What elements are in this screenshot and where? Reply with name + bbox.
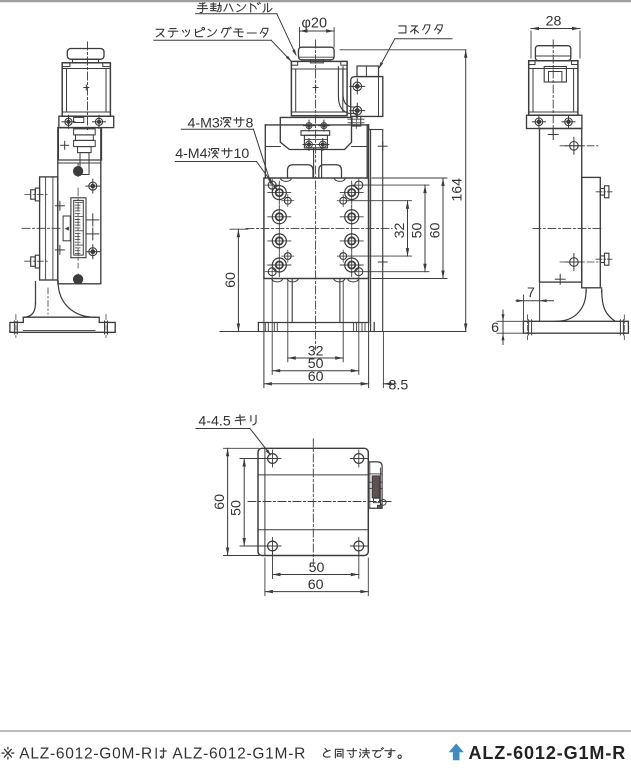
svg-text:ALZ-6012-G1M-R: ALZ-6012-G1M-R (172, 746, 306, 763)
svg-text:60: 60 (223, 272, 239, 288)
svg-text:6: 6 (491, 320, 499, 336)
svg-text:50: 50 (229, 500, 245, 516)
svg-text:10: 10 (234, 146, 250, 162)
svg-text:4-4.5: 4-4.5 (198, 413, 230, 429)
svg-text:32: 32 (392, 223, 408, 239)
svg-text:164: 164 (450, 178, 466, 202)
svg-text:7: 7 (527, 285, 535, 301)
svg-text:4-M4: 4-M4 (175, 146, 207, 162)
svg-text:28: 28 (546, 14, 562, 30)
svg-text:60: 60 (212, 494, 228, 510)
svg-text:8.5: 8.5 (389, 377, 409, 393)
svg-text:60: 60 (308, 369, 324, 385)
svg-text:ALZ-6012-G1M-R: ALZ-6012-G1M-R (469, 743, 627, 763)
svg-text:50: 50 (409, 223, 425, 239)
svg-text:60: 60 (427, 223, 443, 239)
svg-text:50: 50 (309, 560, 325, 576)
svg-text:φ20: φ20 (302, 15, 328, 31)
svg-text:60: 60 (308, 577, 324, 593)
svg-text:ALZ-6012-G0M-R: ALZ-6012-G0M-R (19, 746, 153, 763)
